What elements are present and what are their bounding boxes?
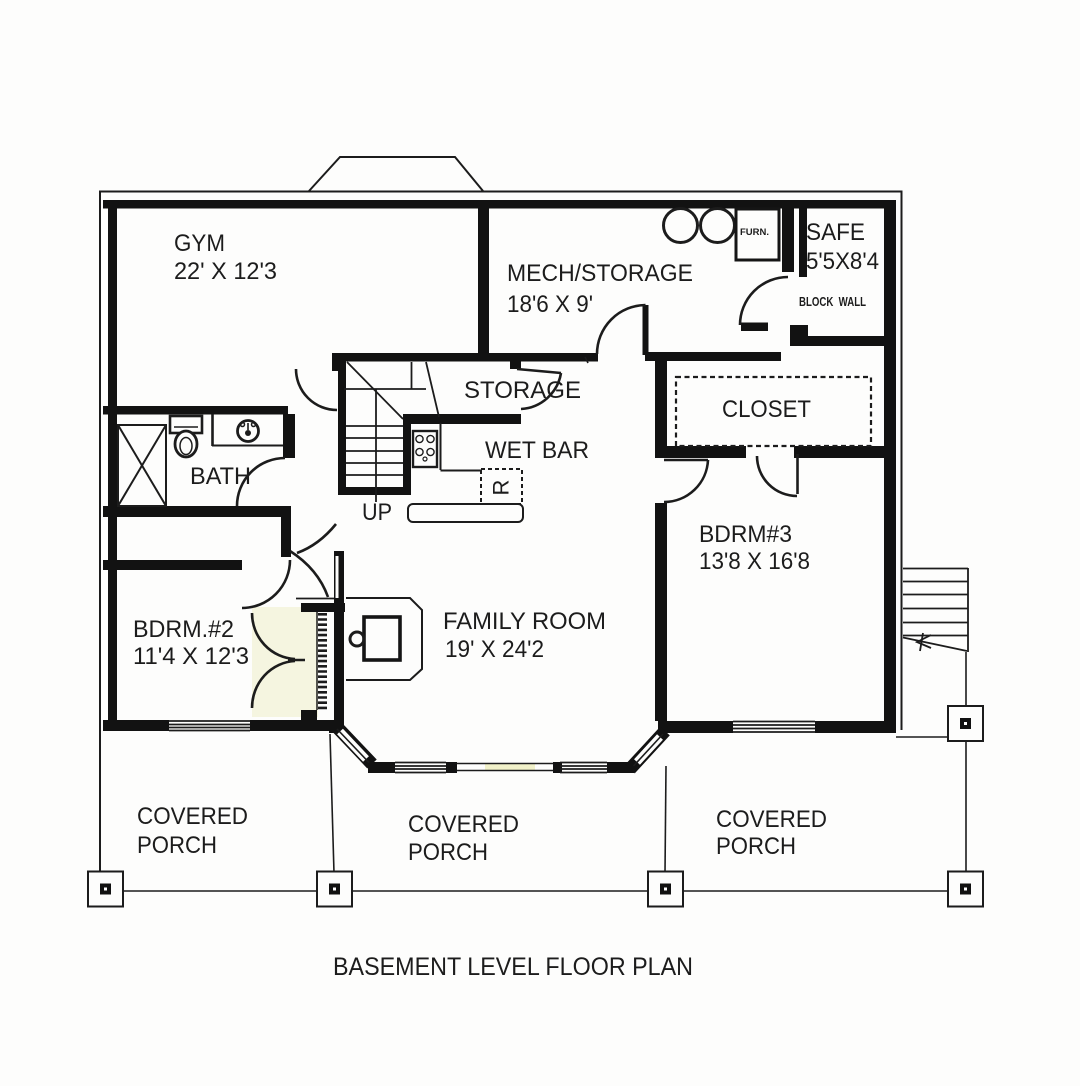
svg-text:PORCH: PORCH xyxy=(408,839,488,866)
svg-text:22' X 12'3: 22' X 12'3 xyxy=(174,258,277,285)
svg-text:5'5X8'4: 5'5X8'4 xyxy=(806,248,879,275)
svg-text:SAFE: SAFE xyxy=(806,219,865,246)
svg-text:FAMILY ROOM: FAMILY ROOM xyxy=(443,608,606,635)
svg-text:BDRM#3: BDRM#3 xyxy=(699,521,792,548)
svg-text:STORAGE: STORAGE xyxy=(464,377,581,404)
svg-text:BASEMENT LEVEL FLOOR PLAN: BASEMENT LEVEL FLOOR PLAN xyxy=(333,953,693,981)
svg-text:11'4 X 12'3: 11'4 X 12'3 xyxy=(133,643,249,670)
svg-text:19' X 24'2: 19' X 24'2 xyxy=(445,636,544,663)
svg-text:COVERED: COVERED xyxy=(137,803,248,830)
svg-text:MECH/STORAGE: MECH/STORAGE xyxy=(507,260,693,287)
svg-text:COVERED: COVERED xyxy=(716,806,827,833)
svg-text:PORCH: PORCH xyxy=(716,833,796,860)
svg-text:FURN.: FURN. xyxy=(740,227,769,237)
svg-text:CLOSET: CLOSET xyxy=(722,396,811,423)
svg-text:13'8 X 16'8: 13'8 X 16'8 xyxy=(699,548,810,575)
svg-text:GYM: GYM xyxy=(174,230,225,257)
svg-text:BDRM.#2: BDRM.#2 xyxy=(133,616,234,643)
svg-text:R: R xyxy=(489,480,514,496)
svg-text:UP: UP xyxy=(362,499,392,526)
svg-text:BLOCK WALL: BLOCK WALL xyxy=(799,294,866,309)
svg-text:COVERED: COVERED xyxy=(408,811,519,838)
svg-text:18'6 X 9': 18'6 X 9' xyxy=(507,291,593,318)
svg-text:WET BAR: WET BAR xyxy=(485,437,589,464)
svg-text:BATH: BATH xyxy=(190,463,251,490)
svg-text:PORCH: PORCH xyxy=(137,832,217,859)
